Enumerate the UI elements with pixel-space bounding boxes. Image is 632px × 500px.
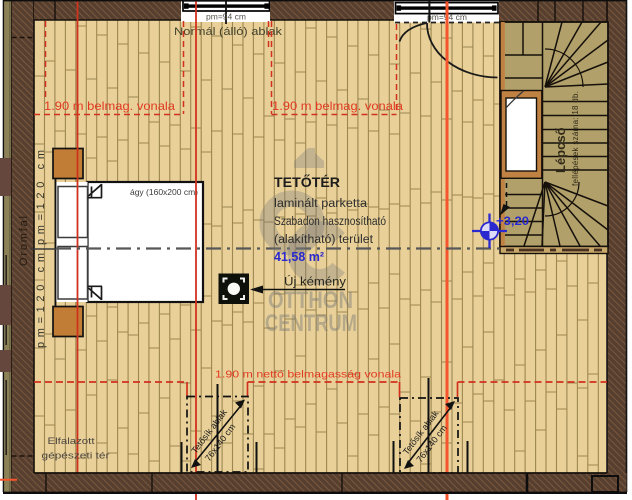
svg-text:1.90 m belmag. vonala: 1.90 m belmag. vonala: [44, 99, 175, 113]
svg-text:gépészeti tér: gépészeti tér: [42, 451, 110, 462]
svg-text:Szabadon hasznosítható: Szabadon hasznosítható: [274, 216, 386, 228]
svg-text:laminált parketta: laminált parketta: [274, 198, 368, 210]
svg-text:fellépések száma: 18 db.: fellépések száma: 18 db.: [571, 91, 580, 186]
svg-text:41,58 m²: 41,58 m²: [274, 250, 324, 264]
svg-text:1.90 m belmag. vonala: 1.90 m belmag. vonala: [272, 99, 403, 113]
svg-text:1.90 m nettó belmagasság vonal: 1.90 m nettó belmagasság vonala: [215, 369, 401, 381]
svg-text:ágy (160x200 cm): ágy (160x200 cm): [130, 187, 198, 197]
svg-text:Új kémény: Új kémény: [284, 276, 346, 289]
svg-text:+3,20: +3,20: [496, 216, 529, 228]
svg-text:Lépcső: Lépcső: [553, 127, 568, 173]
svg-text:pm=94 cm: pm=94 cm: [206, 13, 246, 22]
svg-text:(alakítható) terület: (alakítható) terület: [274, 234, 374, 246]
svg-text:pm=120 cm: pm=120 cm: [35, 150, 47, 245]
svg-text:TETŐTÉR: TETŐTÉR: [274, 173, 340, 190]
svg-text:CENTRUM: CENTRUM: [265, 310, 357, 337]
svg-text:Oromfal: Oromfal: [18, 216, 30, 266]
svg-text:Elfalazott: Elfalazott: [48, 436, 95, 447]
svg-text:Normál (álló) ablak: Normál (álló) ablak: [174, 26, 283, 38]
svg-text:pm=120 cm: pm=120 cm: [35, 253, 47, 348]
